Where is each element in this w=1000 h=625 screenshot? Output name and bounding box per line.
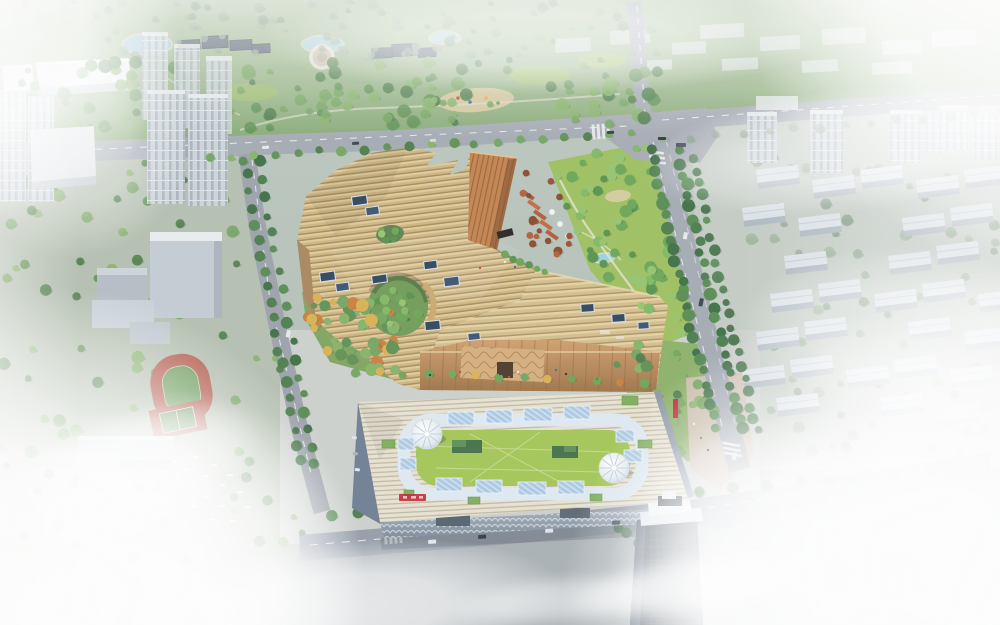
aerial-rendering-canvas [0,0,1000,625]
morning-fog [0,0,1000,625]
aerial-city-rendering [0,0,1000,625]
